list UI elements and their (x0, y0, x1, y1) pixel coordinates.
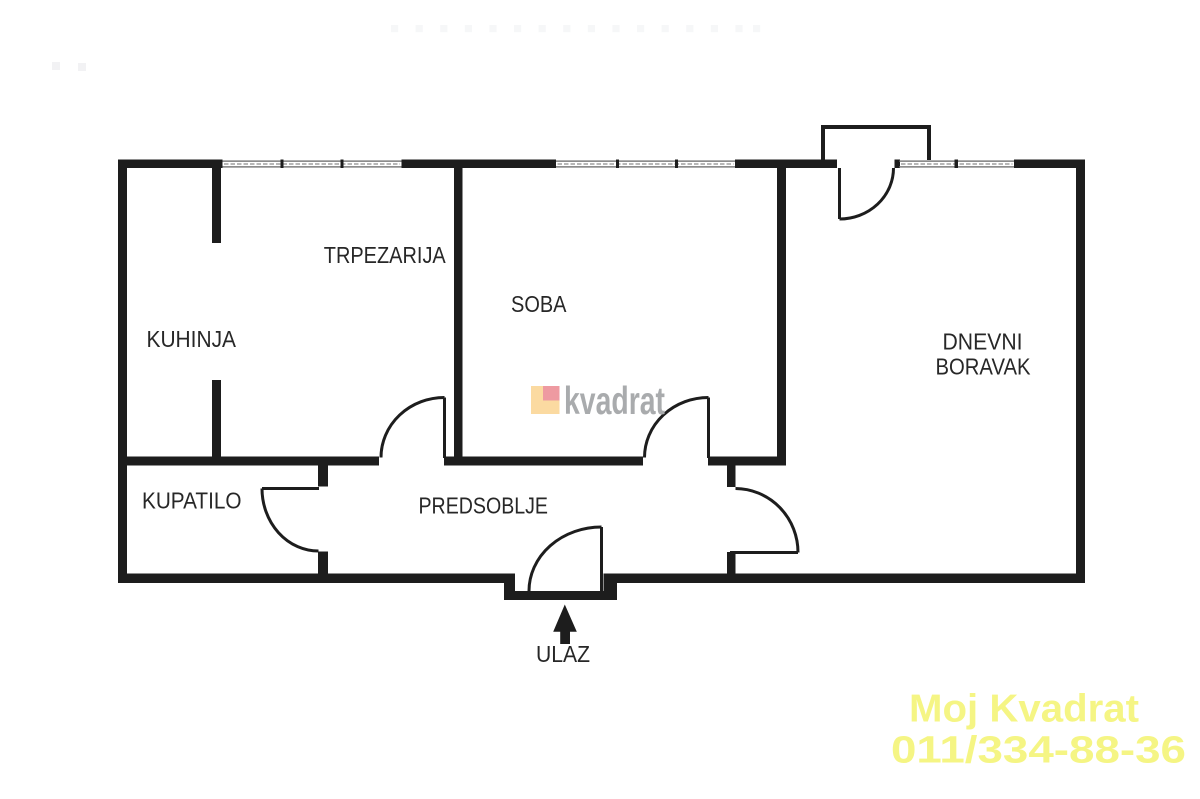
svg-text:BORAVAK: BORAVAK (936, 354, 1032, 380)
svg-text:kvadrat: kvadrat (564, 380, 665, 423)
svg-text:PREDSOBLJE: PREDSOBLJE (419, 493, 549, 519)
svg-text:ULAZ: ULAZ (536, 641, 590, 667)
svg-text:SOBA: SOBA (511, 291, 567, 317)
svg-text:011/334-88-36: 011/334-88-36 (891, 730, 1186, 772)
svg-text:KUHINJA: KUHINJA (147, 326, 237, 352)
svg-text:DNEVNI: DNEVNI (943, 329, 1023, 355)
svg-text:KUPATILO: KUPATILO (142, 488, 242, 514)
svg-text:Moj Kvadrat: Moj Kvadrat (909, 687, 1139, 730)
svg-text:TRPEZARIJA: TRPEZARIJA (324, 242, 447, 268)
